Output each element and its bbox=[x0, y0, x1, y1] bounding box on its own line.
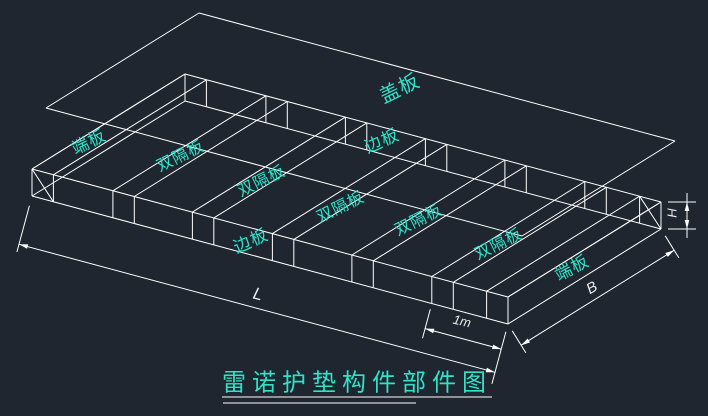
drawing-title: 雷诺护垫构件部件图 bbox=[222, 363, 492, 398]
wireframe-drawing bbox=[0, 0, 708, 416]
cad-model-space: 雷诺护垫构件部件图 盖板端板双隔板双隔板双隔板双隔板双隔板边板边板端板LB1mH bbox=[0, 0, 708, 416]
